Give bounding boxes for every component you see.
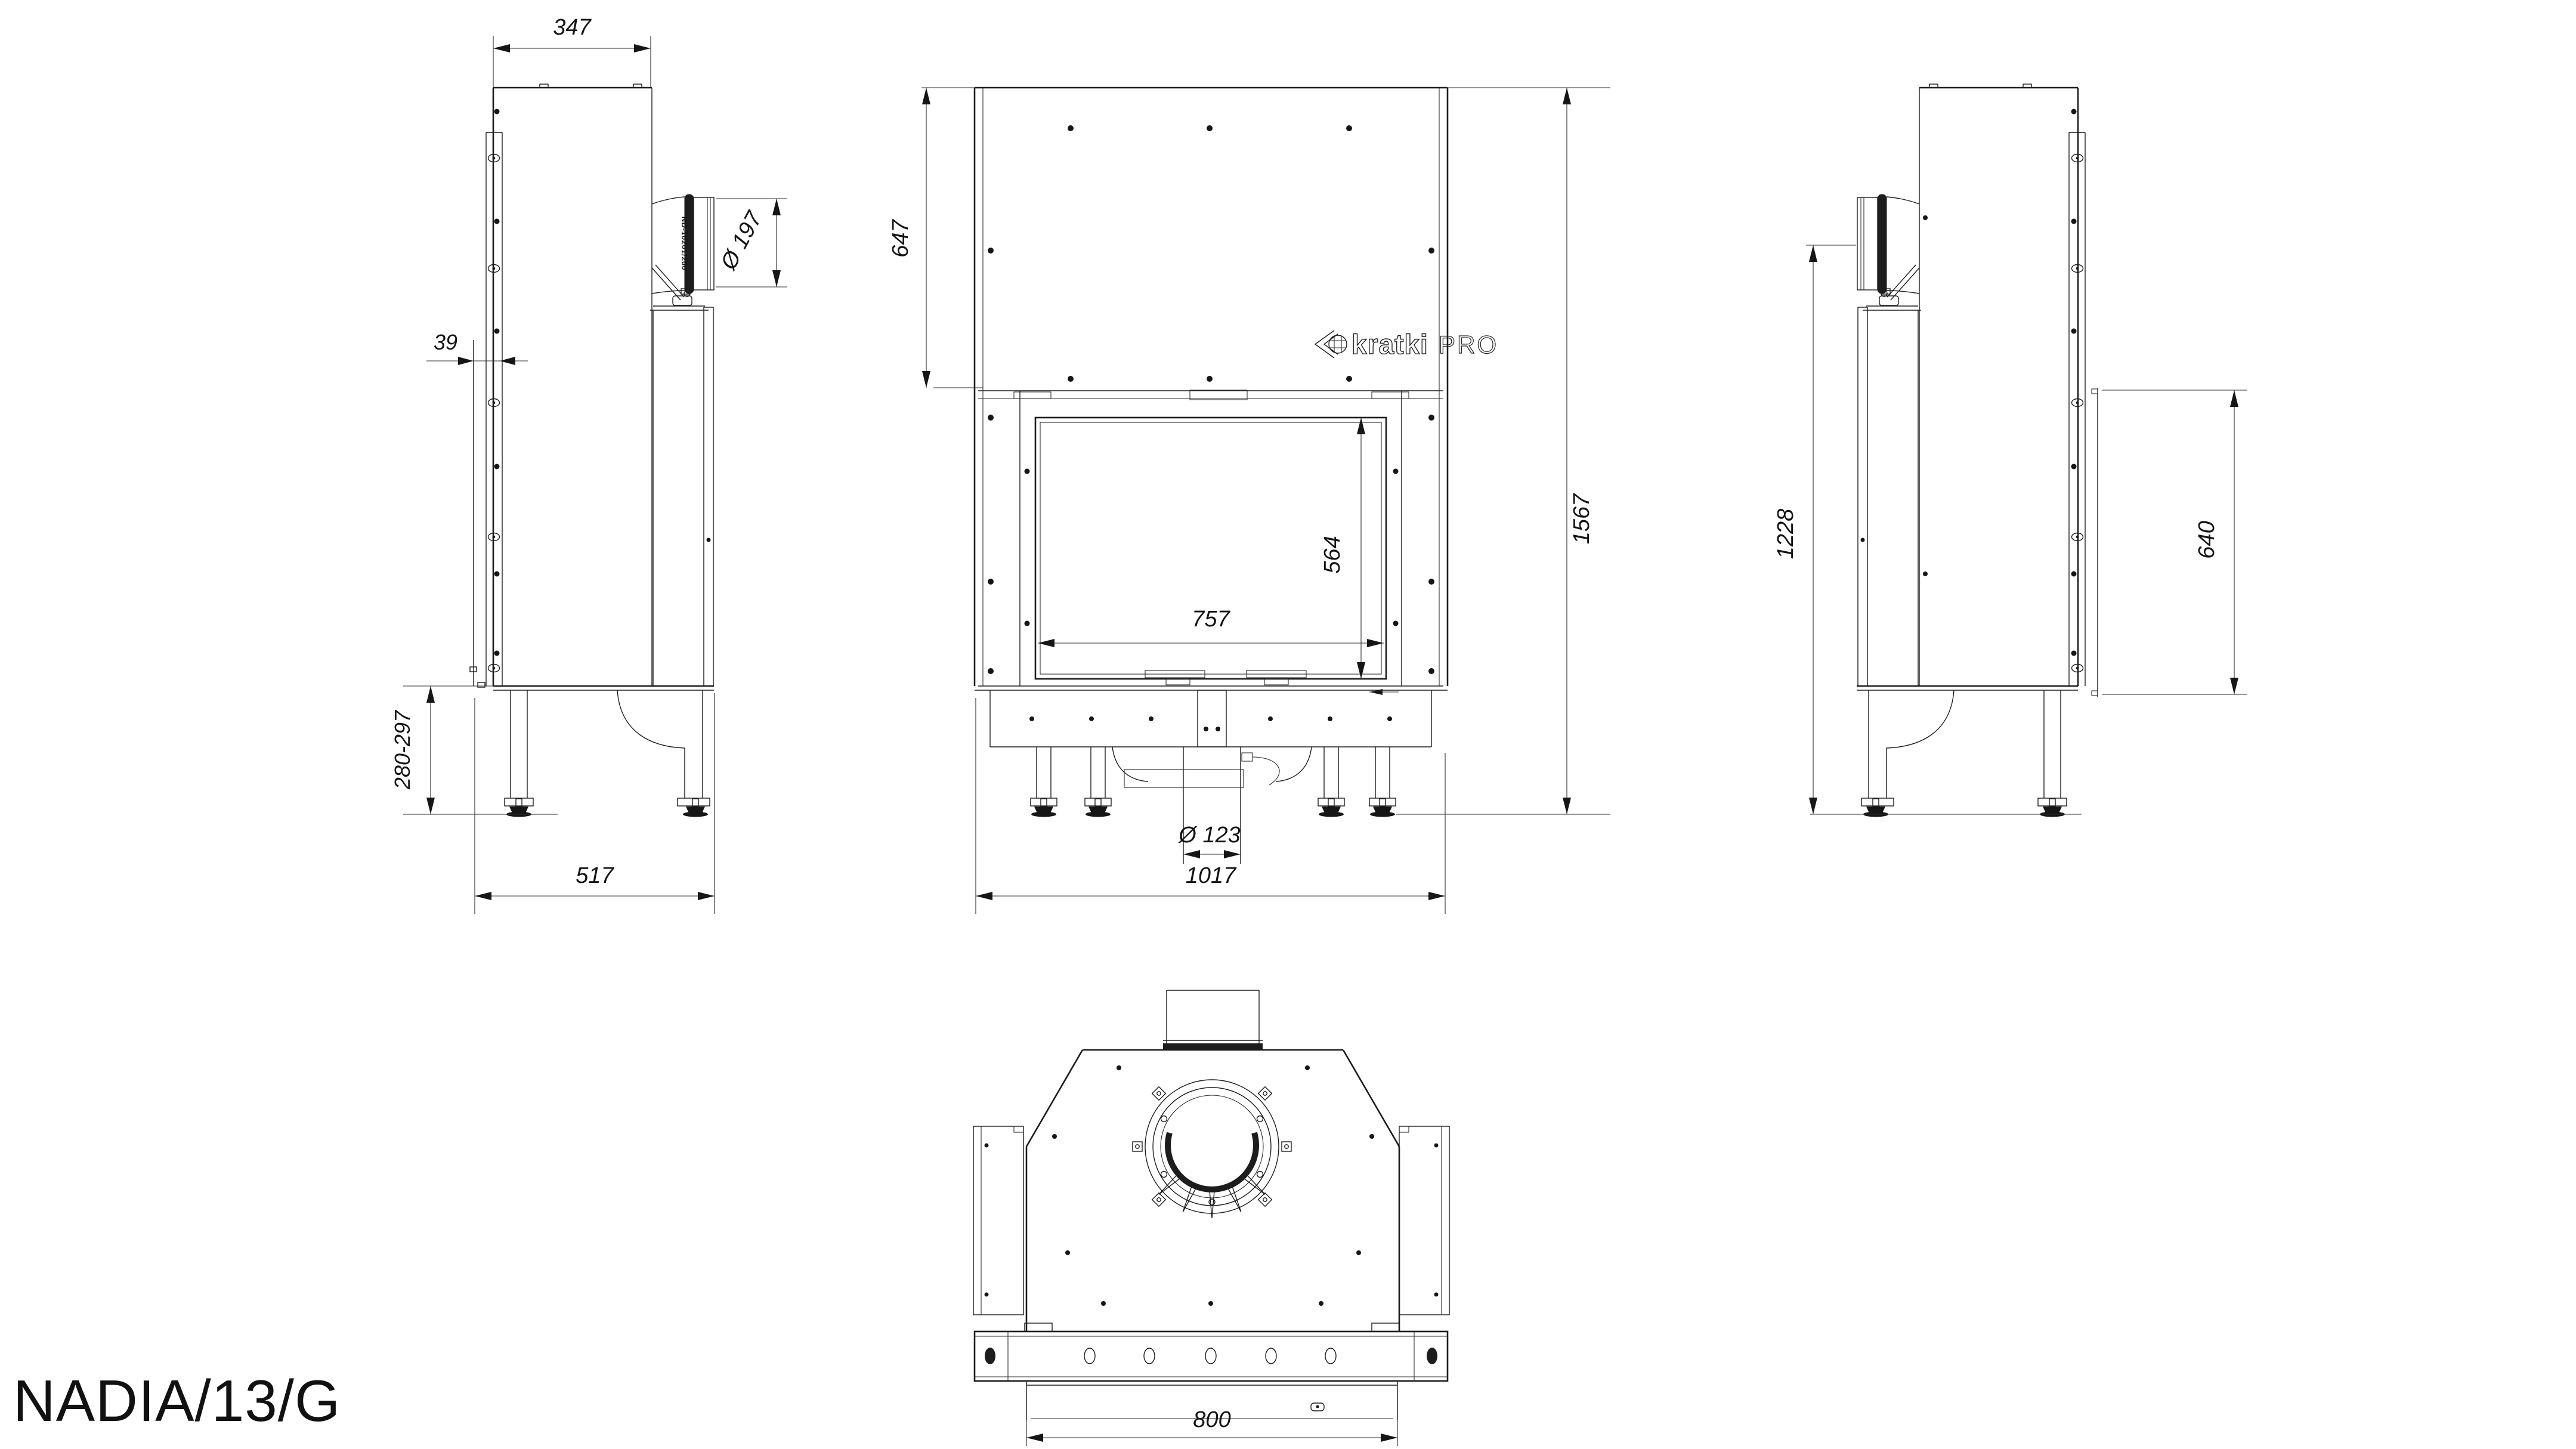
logo-suffix: PRO [1439, 330, 1498, 359]
front-view: kratki PRO [888, 88, 1610, 914]
damper-code-label: ND-10201/200 [680, 217, 689, 271]
damper-collar-right [1878, 194, 1887, 293]
drawing-canvas: 347 [0, 0, 2576, 1449]
front-base [975, 690, 1448, 747]
dim-leg-height-280-297: 280-297 [390, 686, 558, 814]
kratki-pro-logo: kratki PRO [1315, 329, 1498, 360]
left-legs [505, 690, 710, 817]
top-view: 800 [973, 990, 1449, 1446]
dim-label-564: 564 [1320, 536, 1345, 573]
dim-label-1567: 1567 [1569, 493, 1594, 544]
dim-flue-diameter-197: Ø 197 [716, 199, 787, 287]
model-name: NADIA/13/G [13, 1368, 341, 1433]
dim-label-123: Ø 123 [1177, 823, 1241, 848]
dim-top-width-800: 800 [1026, 1407, 1397, 1446]
dim-label-647: 647 [888, 218, 913, 257]
dim-label-517: 517 [576, 863, 614, 888]
top-side-flanges [973, 1126, 1449, 1315]
right-flue-damper [1857, 194, 1921, 310]
dim-label-1017: 1017 [1186, 863, 1237, 888]
right-back-panel [1858, 307, 1918, 686]
left-back-panel [653, 307, 713, 686]
right-side-view: 1228 640 [1773, 84, 2247, 817]
dim-front-offset-39: 39 [426, 330, 528, 365]
technical-drawing-page: 347 [0, 0, 2576, 1449]
front-legs [1031, 747, 1396, 817]
dim-label-280-297: 280-297 [390, 709, 415, 790]
front-door-glass [978, 390, 1443, 695]
dim-glass-width-757: 757 [1038, 607, 1384, 647]
left-flue-damper: ND-10201/200 [650, 194, 714, 310]
top-flue-outlet [1163, 990, 1263, 1050]
top-collar-assembly [1133, 1080, 1291, 1218]
dim-label-757: 757 [1192, 607, 1230, 632]
left-side-view: 347 [390, 15, 787, 914]
logo-text: kratki [1352, 329, 1428, 360]
dim-label-39: 39 [434, 330, 457, 354]
dim-flue-height-1228: 1228 [1773, 245, 1856, 814]
dim-left-depth-347: 347 [493, 15, 651, 88]
left-body [470, 84, 714, 690]
top-front-bar [975, 1323, 1448, 1381]
dim-label-1228: 1228 [1773, 509, 1798, 560]
dim-front-panel-640: 640 [2102, 390, 2247, 694]
dim-label-800: 800 [1193, 1407, 1230, 1432]
right-body [1857, 84, 2098, 697]
dim-top-section-647: 647 [888, 88, 983, 388]
dim-overall-height-1567: 1567 [1396, 88, 1610, 814]
right-legs [1810, 690, 2082, 817]
dim-glass-height-564: 564 [1320, 418, 1365, 679]
dim-label-640: 640 [2194, 521, 2219, 558]
dim-air-inlet-123: Ø 123 [1177, 823, 1241, 858]
dim-label-347: 347 [553, 15, 592, 40]
dim-label-197: Ø 197 [716, 206, 768, 275]
front-body [975, 88, 1448, 686]
